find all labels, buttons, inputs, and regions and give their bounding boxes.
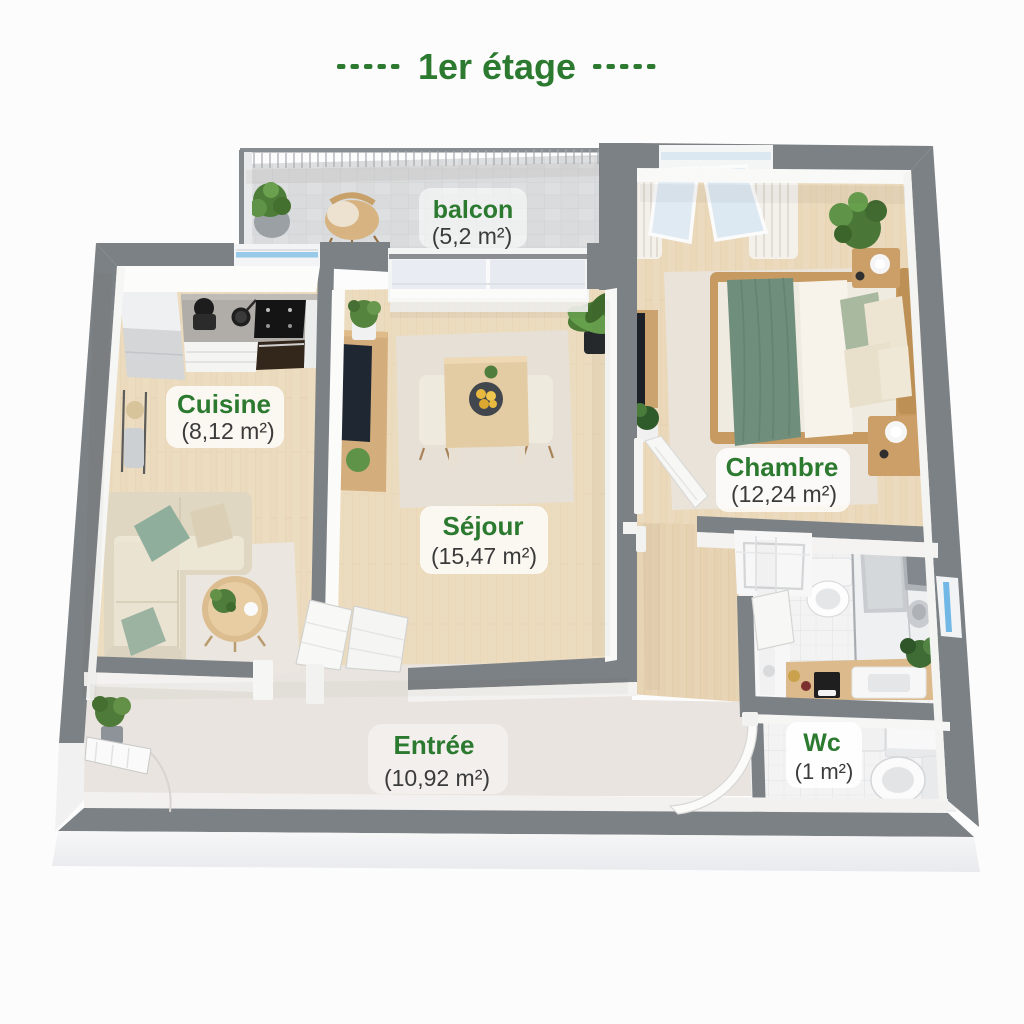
svg-text:(5,2 m²): (5,2 m²) xyxy=(432,223,513,249)
svg-text:Cuisine: Cuisine xyxy=(177,389,271,419)
svg-text:(1 m²): (1 m²) xyxy=(795,759,854,784)
svg-text:Wc: Wc xyxy=(803,729,841,757)
svg-text:(12,24 m²): (12,24 m²) xyxy=(731,481,837,507)
svg-text:(8,12 m²): (8,12 m²) xyxy=(181,418,274,444)
svg-text:1er étage: 1er étage xyxy=(418,46,576,87)
svg-text:balcon: balcon xyxy=(433,196,514,224)
svg-text:Chambre: Chambre xyxy=(726,452,839,482)
svg-text:Séjour: Séjour xyxy=(443,511,524,541)
svg-text:Entrée: Entrée xyxy=(394,730,475,760)
svg-text:(15,47 m²): (15,47 m²) xyxy=(431,543,537,569)
svg-text:(10,92 m²): (10,92 m²) xyxy=(384,765,490,791)
